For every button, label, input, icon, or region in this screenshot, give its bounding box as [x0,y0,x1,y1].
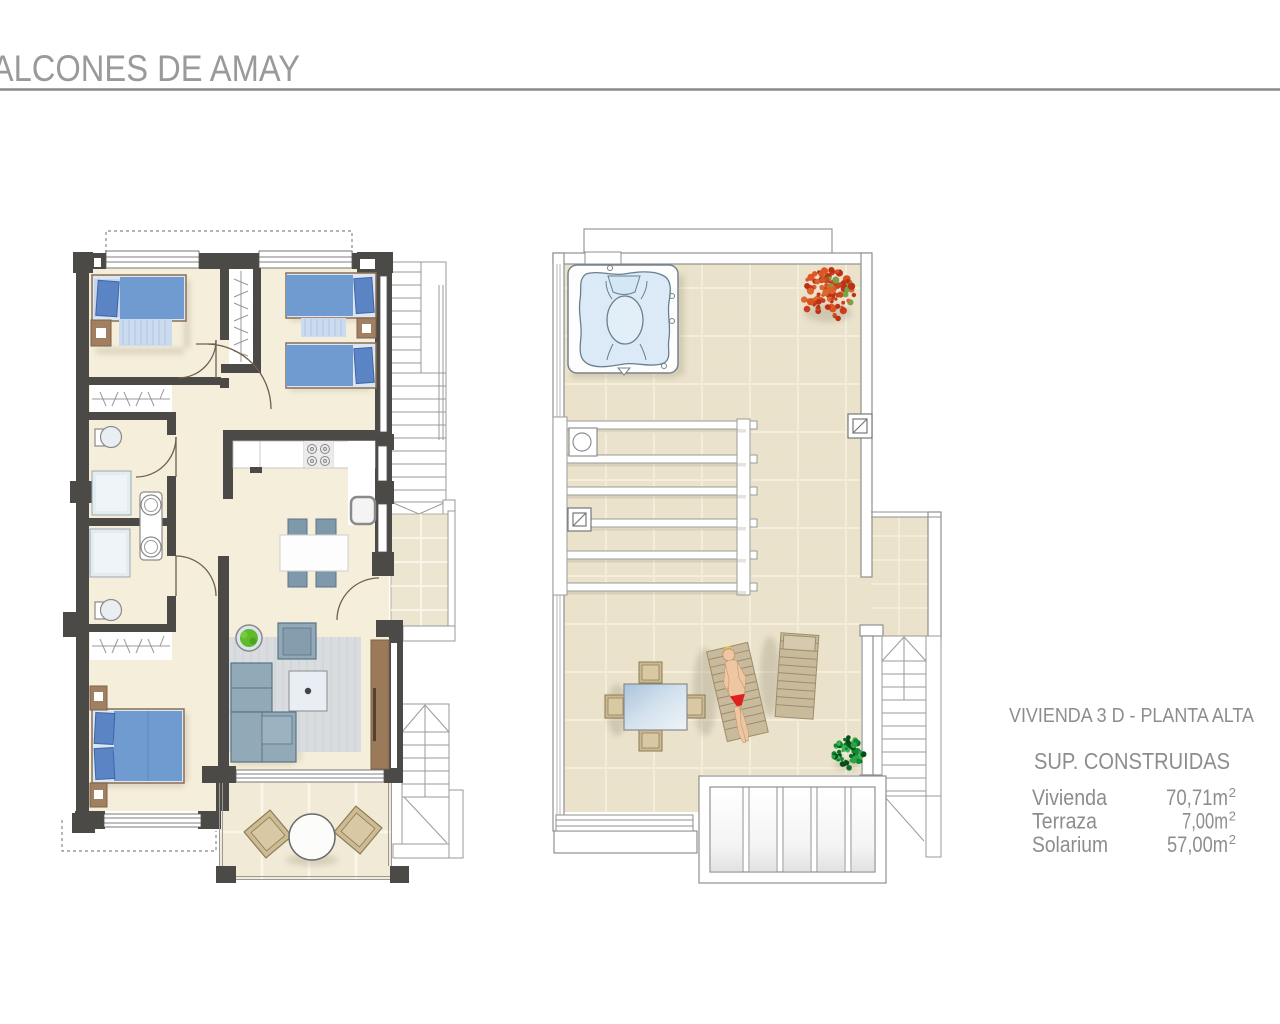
svg-text:2: 2 [1229,809,1236,824]
svg-text:2: 2 [1229,832,1236,847]
svg-text:Terraza: Terraza [1032,809,1098,834]
svg-text:2: 2 [1229,785,1236,800]
svg-text:7,00m: 7,00m [1182,809,1228,834]
svg-text:Solarium: Solarium [1032,832,1108,857]
svg-text:70,71m: 70,71m [1166,785,1228,810]
svg-text:57,00m: 57,00m [1167,832,1228,857]
svg-text:Vivienda: Vivienda [1032,785,1108,810]
svg-text:SUP. CONSTRUIDAS: SUP. CONSTRUIDAS [1034,748,1230,774]
svg-text:VIVIENDA 3 D - PLANTA ALTA: VIVIENDA 3 D - PLANTA ALTA [1009,705,1255,727]
svg-text:BALCONES DE AMAY: BALCONES DE AMAY [0,48,300,89]
